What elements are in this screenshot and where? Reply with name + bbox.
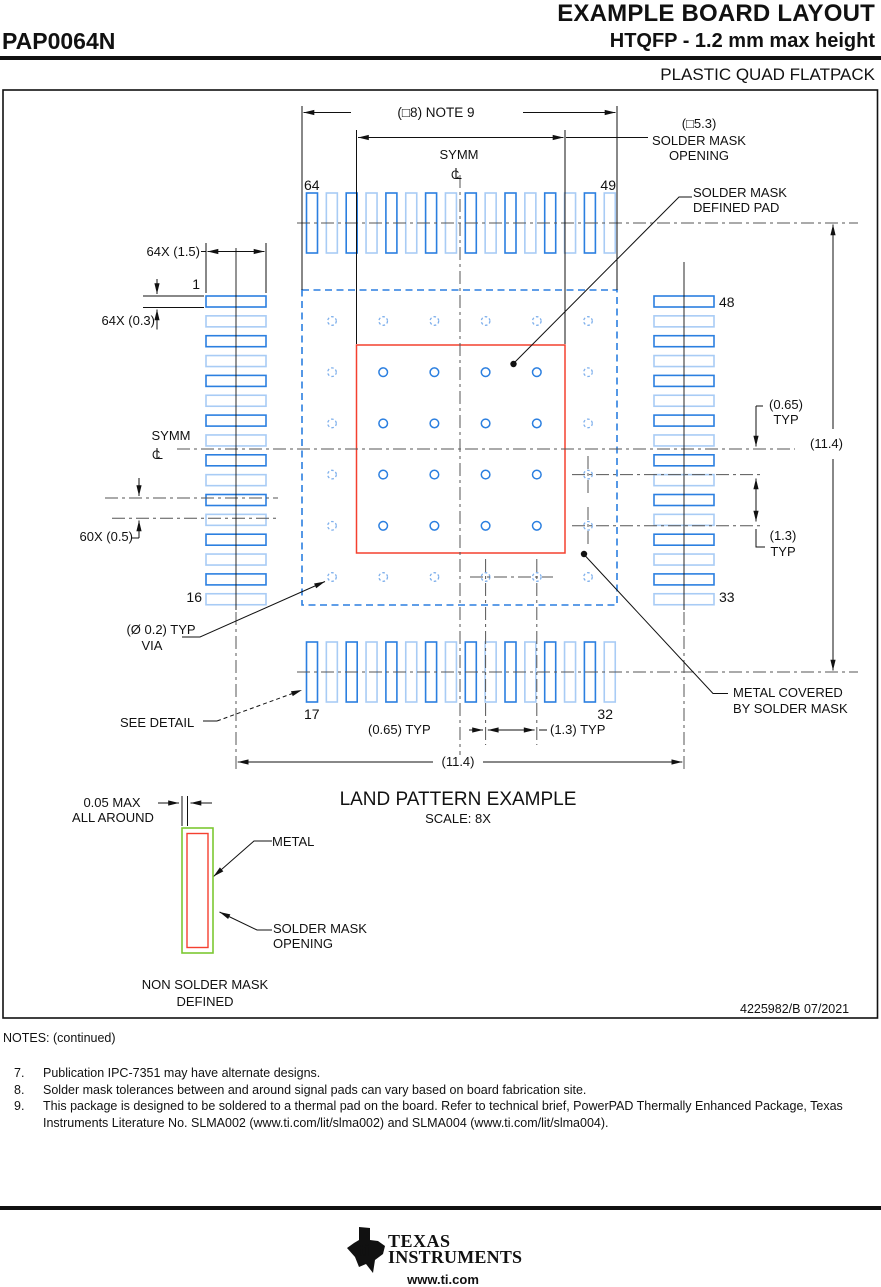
via — [533, 522, 542, 531]
drawing-labels: (□8) NOTE 9 (□5.3) SOLDER MASK OPENING S… — [72, 105, 849, 1016]
pin-32: 32 — [597, 706, 613, 722]
view-scale: SCALE: 8X — [425, 811, 491, 826]
svg-text:C: C — [451, 170, 459, 182]
smo-label-2: OPENING — [669, 148, 729, 163]
leader-dot — [510, 361, 516, 367]
detail-caption-1: NON SOLDER MASK — [142, 977, 269, 992]
pin-48: 48 — [719, 294, 735, 310]
pin-33: 33 — [719, 589, 735, 605]
see-detail-label: SEE DETAIL — [120, 715, 194, 730]
via-masked — [533, 317, 542, 326]
footer-rule — [0, 1206, 881, 1210]
dim-13-right-typ: TYP — [770, 544, 795, 559]
dim-065-right-typ: TYP — [773, 412, 798, 427]
note-text: This package is designed to be soldered … — [43, 1098, 855, 1131]
via — [481, 470, 490, 479]
via — [379, 470, 388, 479]
via-masked — [328, 470, 337, 479]
detail-gap-1: 0.05 MAX — [83, 795, 140, 810]
dim-pitch: 60X (0.5) — [80, 529, 133, 544]
via — [481, 419, 490, 428]
detail-caption-2: DEFINED — [176, 994, 233, 1009]
centerline-symbol-left: C — [152, 448, 163, 462]
page: EXAMPLE BOARD LAYOUT PAP0064N HTQFP - 1.… — [0, 0, 881, 1287]
via-label-1: (Ø 0.2) TYP — [126, 622, 195, 637]
via-masked — [430, 317, 439, 326]
note-number: 8. — [3, 1082, 43, 1098]
via-masked — [328, 522, 337, 531]
note-text: Publication IPC-7351 may have alternate … — [43, 1065, 855, 1081]
svg-text:C: C — [152, 450, 160, 462]
detail-gap-2: ALL AROUND — [72, 810, 154, 825]
pin-17: 17 — [304, 706, 320, 722]
via-masked — [379, 573, 388, 582]
detail-view — [182, 828, 213, 953]
note-item-9: 9. This package is designed to be solder… — [3, 1098, 875, 1131]
mc-label-2: BY SOLDER MASK — [733, 701, 848, 716]
smd-label-2: DEFINED PAD — [693, 200, 779, 215]
brand-line-2: INSTRUMENTS — [388, 1249, 522, 1266]
via — [533, 470, 542, 479]
doc-number: 4225982/B 07/2021 — [740, 1002, 849, 1016]
ti-url[interactable]: www.ti.com — [393, 1272, 493, 1287]
detail-smo-1: SOLDER MASK — [273, 921, 367, 936]
note-text: Solder mask tolerances between and aroun… — [43, 1082, 855, 1098]
pin-1: 1 — [192, 276, 200, 292]
dim-13-bottom: (1.3) TYP — [550, 722, 605, 737]
ti-logo-icon: ti — [346, 1226, 388, 1276]
via-masked — [328, 419, 337, 428]
via-masked — [584, 573, 593, 582]
via-masked — [430, 573, 439, 582]
pin-49: 49 — [600, 177, 616, 193]
via-masked — [481, 317, 490, 326]
symm-top-label: SYMM — [440, 147, 479, 162]
via-masked — [328, 317, 337, 326]
via — [430, 522, 439, 531]
via-masked — [328, 573, 337, 582]
dim-13-right: (1.3) — [770, 528, 797, 543]
notes-section: NOTES: (continued) 7. Publication IPC-73… — [3, 1030, 875, 1131]
note-item-7: 7. Publication IPC-7351 may have alterna… — [3, 1065, 875, 1081]
via-masked — [584, 317, 593, 326]
dim-overall-label: (□8) NOTE 9 — [397, 105, 474, 120]
via — [379, 522, 388, 531]
pin-64: 64 — [304, 177, 320, 193]
notes-heading: NOTES: (continued) — [3, 1030, 875, 1046]
note-item-8: 8. Solder mask tolerances between and ar… — [3, 1082, 875, 1098]
via-masked — [584, 368, 593, 377]
dim-body-right: (11.4) — [810, 436, 843, 451]
brand-name: TEXAS INSTRUMENTS — [388, 1233, 522, 1266]
mc-label-1: METAL COVERED — [733, 685, 843, 700]
note-number: 9. — [3, 1098, 43, 1131]
dim-065-bottom: (0.65) TYP — [368, 722, 431, 737]
via — [430, 419, 439, 428]
via — [430, 470, 439, 479]
via — [430, 368, 439, 377]
dim-body-bottom: (11.4) — [442, 754, 475, 769]
via — [481, 522, 490, 531]
detail-smo-2: OPENING — [273, 936, 333, 951]
via — [481, 368, 490, 377]
note-number: 7. — [3, 1065, 43, 1081]
dim-pad-width: 64X (0.3) — [102, 313, 155, 328]
via — [379, 368, 388, 377]
ti-logo-text: ti — [359, 1241, 369, 1260]
smd-label-1: SOLDER MASK — [693, 185, 787, 200]
symm-left-label: SYMM — [152, 428, 191, 443]
drawing-frame — [3, 90, 878, 1018]
via — [533, 419, 542, 428]
via-masked — [584, 419, 593, 428]
detail-metal-rect — [187, 834, 208, 948]
dim-065-right: (0.65) — [769, 397, 803, 412]
dim-pad-length: 64X (1.5) — [147, 244, 200, 259]
detail-metal-label: METAL — [272, 834, 314, 849]
pin-16: 16 — [186, 589, 202, 605]
via — [379, 419, 388, 428]
smo-label-1: SOLDER MASK — [652, 133, 746, 148]
leader-dot — [581, 551, 587, 557]
via-label-2: VIA — [142, 638, 163, 653]
smo-dim-label: (□5.3) — [682, 116, 717, 131]
via-masked — [328, 368, 337, 377]
via — [533, 368, 542, 377]
via-masked — [379, 317, 388, 326]
view-title: LAND PATTERN EXAMPLE — [340, 789, 577, 810]
